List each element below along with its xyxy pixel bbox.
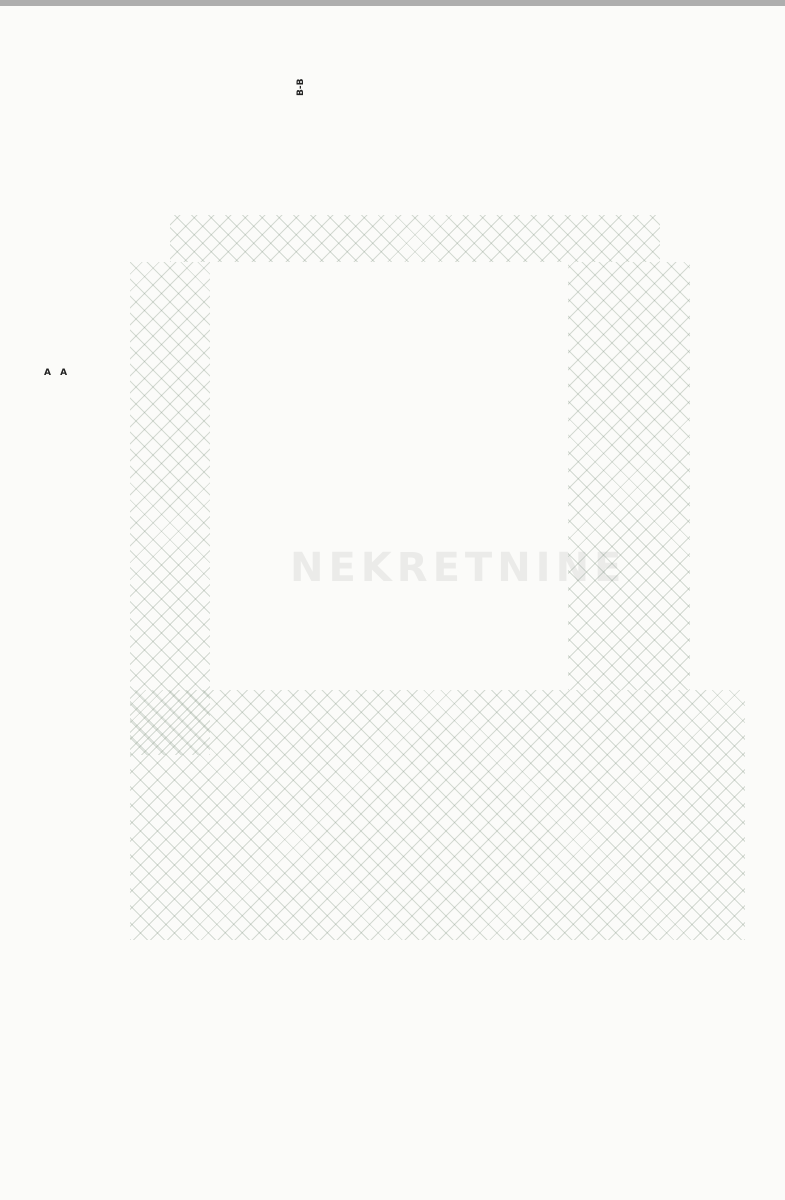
terrace-boundary-line: [0, 486, 25, 487]
watermark: NEKRETNINE: [290, 545, 626, 591]
terrace-hatch: [130, 262, 210, 755]
terrace-boundary-line: [0, 913, 55, 914]
terrace-boundary-line: [0, 673, 1, 913]
terrace-boundary-line: [0, 1184, 30, 1185]
section-marker-aa: A A: [44, 368, 70, 378]
terrace-boundary-line: [0, 914, 1, 1184]
terrace-boundary-line: [0, 1185, 1, 1200]
section-marker-bb: B-B: [296, 79, 306, 96]
floor-plan-sheet: NEKRETNINE B-B A A: [0, 0, 785, 1200]
terrace-hatch: [170, 215, 660, 262]
terrace-boundary-line: [0, 0, 1, 485]
terrace-hatch: [568, 262, 690, 690]
floor-plan-drawing: [0, 0, 785, 1200]
terrace-boundary-line: [0, 487, 1, 672]
terrace-hatch: [130, 690, 745, 940]
terrace-boundary-line: [0, 672, 590, 673]
